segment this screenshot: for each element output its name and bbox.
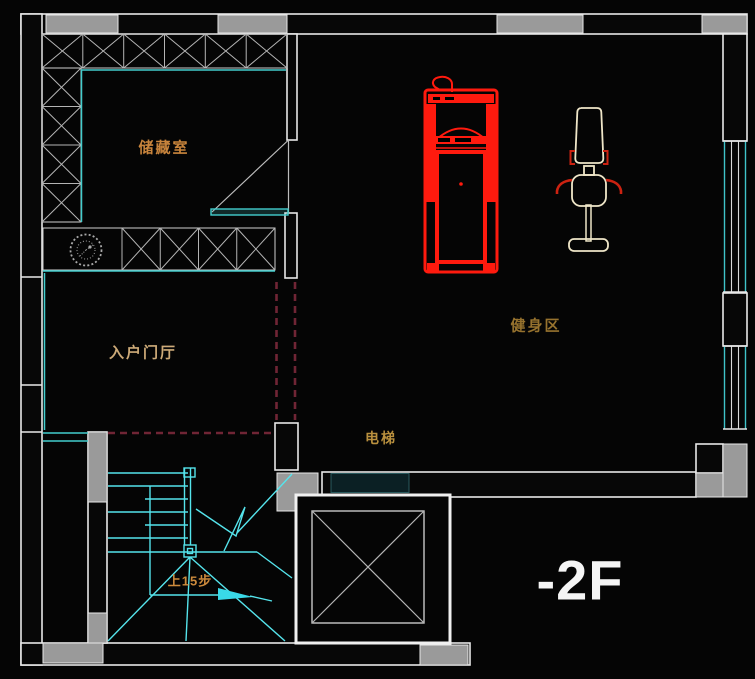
cabinet-hatch-storage-left [42,68,81,222]
door-swing-storage [211,140,289,215]
treadmill-rail-right [486,104,496,202]
gym-area-label: 健身区 [510,315,561,336]
machine-post [586,205,591,241]
stair-treads [108,473,188,538]
wall-box-bottom-right [696,444,723,473]
exercise-machine [557,108,621,251]
plant-symbol [71,235,102,266]
wall-storage-right [287,34,297,140]
stair-break-line [196,507,245,551]
machine-handle-right [606,180,621,194]
floor-level-label: -2F [537,548,624,613]
storage-room-label: 储藏室 [138,137,189,158]
cabinet-hatch-storage-top [42,34,287,68]
wall-stub-upper [285,213,297,278]
elevator-label: 电梯 [365,428,397,448]
treadmill-rail-left [426,104,436,202]
treadmill-belt [437,152,485,262]
machine-clip-left [571,151,576,164]
machine-seat [572,175,606,206]
wall-left [21,14,42,665]
door-leaf [211,209,288,215]
foyer-bottom-teal-lines [43,433,88,441]
wall-right-upper [723,34,747,141]
machine-handle-left [557,180,572,194]
elevator-shaft [296,474,450,644]
floorplan-drawing [0,0,755,679]
window-right-lower [723,346,747,429]
wall-right-middle [723,293,747,346]
treadmill [425,77,497,272]
wall-top [21,14,747,34]
wall-stub-lower [275,423,298,470]
elevator-door-opening [331,474,409,493]
stair-direction-arrow [218,588,253,600]
stairs-note-label: 上15步 [168,571,212,590]
foyer-label: 入户门厅 [109,342,177,363]
floorplan-canvas: 储藏室 入户门厅 健身区 电梯 上15步 -2F [0,0,755,679]
stair-stringer [185,468,191,545]
stair-arrow-tail [250,596,272,601]
machine-backrest [575,108,603,163]
stair-newel [184,545,196,557]
window-right-upper [723,141,747,292]
elevator-shaft-outer [296,495,450,643]
staircase [108,468,292,641]
cabinet-hatch-foyer-top [43,228,275,270]
